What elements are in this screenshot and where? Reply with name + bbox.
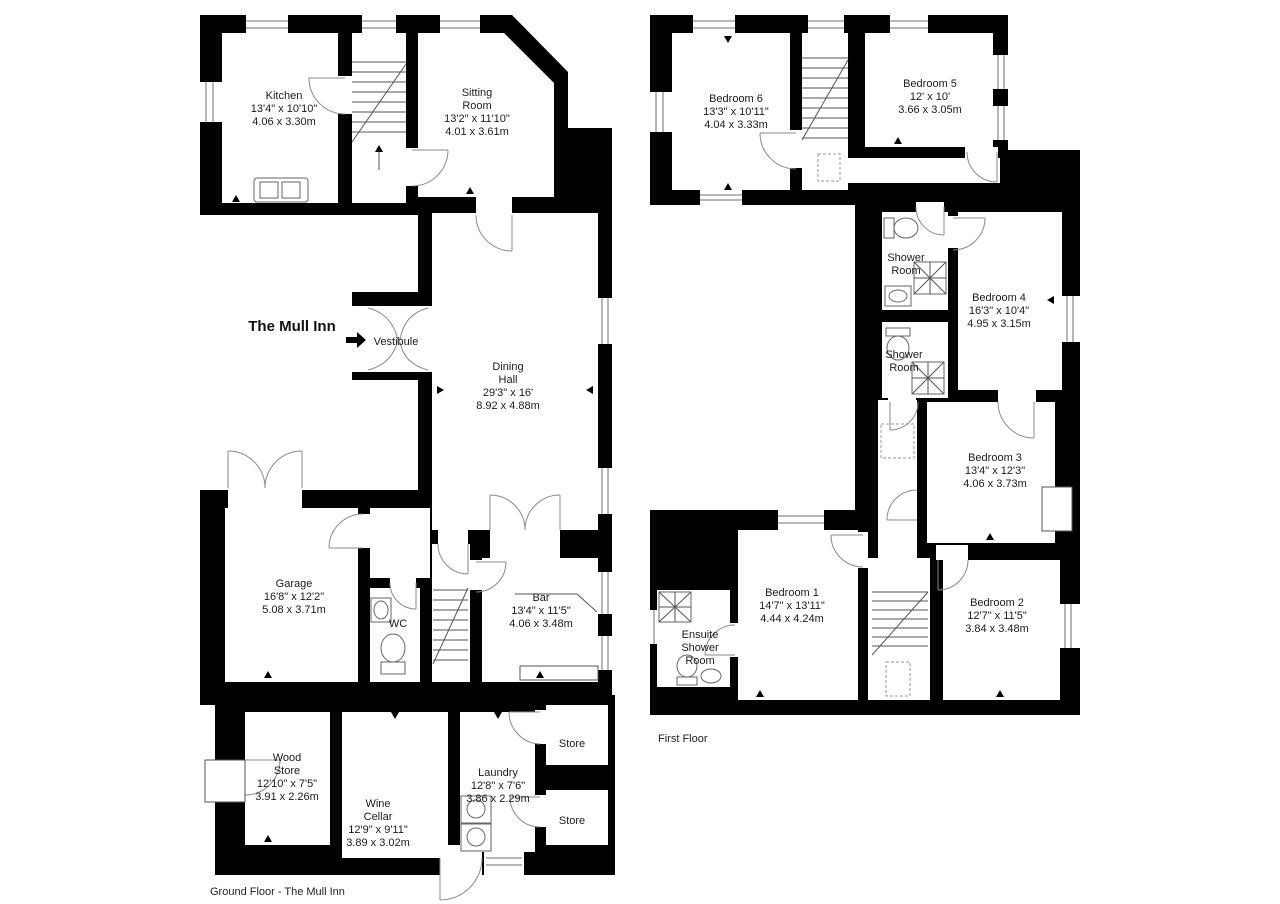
room-label-store-1: Store xyxy=(559,738,585,751)
room-label-bedroom-4: Bedroom 4 16'3" x 10'4" 4.95 x 3.15m xyxy=(967,292,1031,331)
porch xyxy=(205,760,245,802)
room-landing xyxy=(846,158,1000,183)
room-label-sitting-room: Sitting Room 13'2" x 11'10" 4.01 x 3.61m xyxy=(444,87,510,139)
room-label-bedroom-5: Bedroom 5 12' x 10' 3.66 x 3.05m xyxy=(898,78,962,117)
plan-title: The Mull Inn xyxy=(248,318,336,335)
room-label-wine-cellar: Wine Cellar 12'9" x 9'11" 3.89 x 3.02m xyxy=(346,798,410,850)
room-stair-hall xyxy=(352,33,406,203)
room-label-laundry: Laundry 12'8" x 7'6" 3.86 x 2.29m xyxy=(466,767,530,806)
room-label-kitchen: Kitchen 13'4" x 10'10" 4.06 x 3.30m xyxy=(251,90,317,129)
room-label-bedroom-6: Bedroom 6 13'3" x 10'11" 4.04 x 3.33m xyxy=(703,93,769,132)
room-label-bedroom-2: Bedroom 2 12'7" x 11'5" 3.84 x 3.48m xyxy=(965,597,1029,636)
room-label-ensuite: Ensuite Shower Room xyxy=(672,629,728,668)
room-stairs-bottom xyxy=(868,558,930,700)
room-label-dining-hall: Dining Hall 29'3" x 16' 8.92 x 4.88m xyxy=(476,361,540,413)
room-label-bedroom-3: Bedroom 3 13'4" x 12'3" 4.06 x 3.73m xyxy=(963,452,1027,491)
room-label-bar: Bar 13'4" x 11'5" 4.06 x 3.48m xyxy=(509,592,573,631)
room-label-shower-room-2: Shower Room xyxy=(878,349,930,375)
floorplan-canvas xyxy=(0,0,1280,904)
room-label-vestibule: Vestibule xyxy=(374,336,419,349)
room-label-shower-room-1: Shower Room xyxy=(880,252,932,278)
room-label-bedroom-1: Bedroom 1 14'7" x 13'11" 4.44 x 4.24m xyxy=(759,587,825,626)
room-corridor xyxy=(432,544,470,682)
room-label-store-2: Store xyxy=(559,815,585,828)
room-hall xyxy=(370,508,430,578)
first-floor-caption: First Floor xyxy=(658,733,708,745)
ground-floor-caption: Ground Floor - The Mull Inn xyxy=(210,886,345,898)
room-label-garage: Garage 16'8" x 12'2" 5.08 x 3.71m xyxy=(262,578,326,617)
room-stairs-top xyxy=(802,33,848,190)
room-store-1 xyxy=(546,705,608,765)
room-label-wc: WC xyxy=(389,618,407,631)
floorplan-page: The Mull Inn Kitchen 13'4" x 10'10" 4.06… xyxy=(0,0,1280,904)
room-label-wood-store: Wood Store 12'10" x 7'5" 3.91 x 2.26m xyxy=(255,752,319,804)
